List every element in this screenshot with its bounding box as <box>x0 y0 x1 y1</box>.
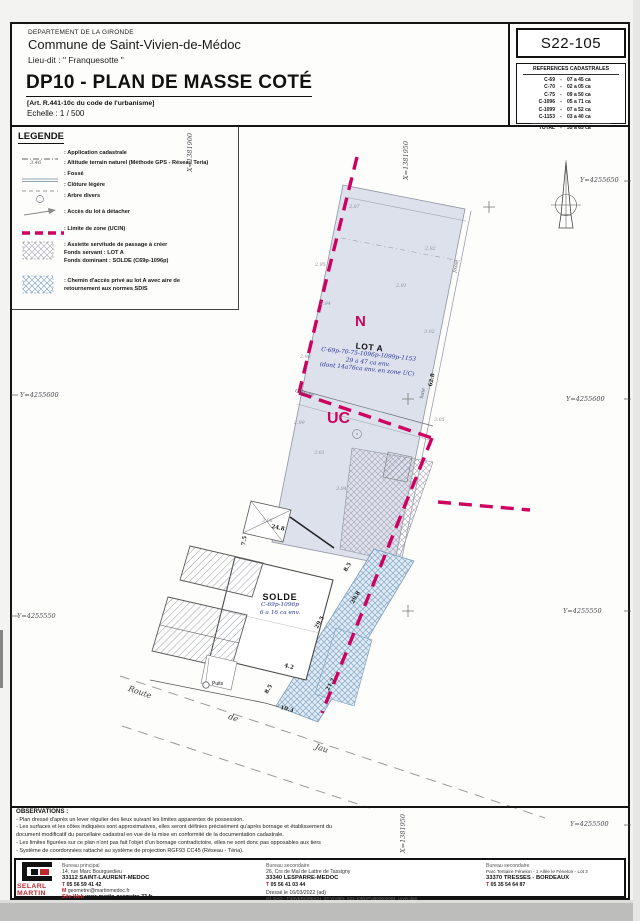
chemin-acces-symbol <box>20 274 60 301</box>
acces-lot-symbol <box>20 206 60 224</box>
email-label: M <box>62 888 66 894</box>
coord-x-label: X=1381900 <box>186 133 194 172</box>
reference-row: C-69-07 a 45 ca <box>517 77 625 85</box>
ref-area: 09 a 50 ca <box>567 92 625 100</box>
logo-text-line2: MARTIN <box>17 890 46 897</box>
scan-edge-band <box>0 903 640 921</box>
legend-item-label: : Assiette servitude de passage à créer <box>64 241 242 249</box>
coord-x-label: X=1381950 <box>402 141 410 180</box>
coord-y-label: Y=4255550 <box>17 612 56 620</box>
scan-artifact <box>0 630 3 688</box>
logo-text-line1: SELARL <box>17 883 47 890</box>
department-label: DEPARTEMENT DE LA GIRONDE <box>28 29 134 36</box>
ref-area: 07 a 52 ca <box>567 107 625 115</box>
dossier-code-box: S22-105 <box>516 28 626 58</box>
legend-title: LEGENDE <box>18 131 64 144</box>
legend-item-label2: Fonds servant : LOT A <box>64 249 242 257</box>
ref-sep: - <box>555 99 567 107</box>
legend-item-label: : Chemin d'accès privé au lot A avec air… <box>64 277 242 285</box>
solde-name: SOLDE <box>240 592 320 602</box>
coord-y-label: Y=4255650 <box>580 176 619 184</box>
legend-item-label: : Application cadastrale <box>64 149 242 157</box>
company-logo-accent <box>40 869 49 875</box>
ref-parcel: C-1099 <box>517 107 555 115</box>
ref-parcel: C-1096 <box>517 99 555 107</box>
observations-block: OBSERVATIONS : - Plan dressé d'après un … <box>16 808 412 855</box>
scan-margin-right <box>633 0 640 921</box>
office-address2: 33112 SAINT-LAURENT-MEDOC <box>62 875 152 882</box>
company-logo-accent2 <box>31 869 38 875</box>
phone-value: 05 56 41 03 44 <box>271 882 306 888</box>
scanned-plan-document: { "header": { "department": "DEPARTEMENT… <box>0 0 640 921</box>
ref-parcel: C-70 <box>517 84 555 92</box>
legend-item-label: : Fossé <box>64 170 242 178</box>
phone-label: T <box>62 882 65 888</box>
altitude-value: 3.01 <box>314 451 325 456</box>
legend-border-bottom <box>12 309 239 310</box>
observation-line: - Plan dressé d'après un lever régulier … <box>16 817 412 825</box>
phone-value: 05 35 54 64 87 <box>491 882 526 888</box>
observation-line: - Système de coordonnées rattaché au sys… <box>16 848 412 856</box>
puits-label: Puits <box>212 681 223 687</box>
phone-label: T <box>486 882 489 888</box>
zone-n-label: N <box>355 313 366 330</box>
legend-item-label3: Fonds dominant : SOLDE (C69p-1096p) <box>64 257 242 265</box>
header-divider-vertical <box>508 24 510 125</box>
phone-label: T <box>266 882 269 888</box>
page-title: DP10 - PLAN DE MASSE COTÉ <box>26 72 312 97</box>
ref-total-area: 35 a 63 ca <box>567 125 611 133</box>
scale-label: Echelle : 1 / 500 <box>27 109 84 118</box>
office-phone: T 05 35 54 64 87 <box>486 882 588 888</box>
ref-area: 05 a 71 ca <box>567 99 625 107</box>
coord-y-label: Y=4255600 <box>20 391 59 399</box>
office-principal: Bureau principal 14, rue Marc Bourguedie… <box>62 863 152 900</box>
ref-sep: - <box>555 125 567 133</box>
references-title: REFERENCES CADASTRALES <box>523 66 619 75</box>
servitude-symbol <box>20 240 60 267</box>
reference-row: C-1096-05 a 71 ca <box>517 99 625 107</box>
observations-title: OBSERVATIONS : <box>16 808 412 815</box>
legend-item-label: : Limite de zone (UC/N) <box>64 225 242 233</box>
observation-line: - Les surfaces et les côtes indiquées so… <box>16 824 412 832</box>
office-address2: 33340 LESPARRE-MEDOC <box>266 875 417 882</box>
office-address1: Parc Tertiaire Fénelon - 1 Allée le Féne… <box>486 869 588 875</box>
zone-uc-label: UC <box>327 410 350 428</box>
ref-sep: - <box>555 77 567 85</box>
altitude-value: 3.04 <box>336 487 347 492</box>
ref-area: 02 a 05 ca <box>567 84 625 92</box>
altitude-value: 3.02 <box>424 330 435 335</box>
ref-parcel: C-1153 <box>517 114 555 122</box>
ref-sep: - <box>555 107 567 115</box>
reference-row: C-75-09 a 50 ca <box>517 92 625 100</box>
ref-area: 03 a 40 ca <box>567 114 625 122</box>
ref-total-label: TOTAL <box>531 125 555 133</box>
observation-line: document modificatif du parcellaire cada… <box>16 832 412 840</box>
ref-parcel: C-69 <box>517 77 555 85</box>
dossier-code: S22-105 <box>541 35 601 52</box>
solde-area: 6 a 16 ca env. <box>240 610 320 618</box>
article-reference: [Art. R.441-10c du code de l'urbanisme] <box>27 100 154 107</box>
legend-item-label: : Clôture légère <box>64 181 242 189</box>
altitude-value: 3.08 <box>262 519 273 524</box>
phone-value: 05 56 59 41 42 <box>67 882 102 888</box>
coord-y-label: Y=4255600 <box>566 395 605 403</box>
office-secondaire-2: Bureau secondaire Parc Tertiaire Fénelon… <box>486 863 588 888</box>
legend-item-label2: retournement aux normes SDIS <box>64 285 242 293</box>
coord-y-label: Y=4255500 <box>570 820 609 828</box>
altitude-value: 2.96 <box>300 355 311 360</box>
ref-sep: - <box>555 114 567 122</box>
solde-refs: C-69p-1096p <box>240 602 320 610</box>
reference-row: C-1153-03 a 40 ca <box>517 114 625 122</box>
references-cadastrales-box: REFERENCES CADASTRALES C-69-07 a 45 ca C… <box>516 63 626 124</box>
ref-sep: - <box>555 92 567 100</box>
commune-title: Commune de Saint-Vivien-de-Médoc <box>28 37 241 52</box>
office-phone: T 05 56 41 03 44 <box>266 882 417 888</box>
reference-row: C-70-02 a 05 ca <box>517 84 625 92</box>
altitude-value: 2.99 <box>294 421 305 426</box>
altitude-value: 2.91 <box>396 284 407 289</box>
altitude-value: 2.87 <box>349 205 360 210</box>
legend-item-label: : Altitude terrain naturel (Méthode GPS … <box>64 159 242 167</box>
altitude-value: 2.94 <box>320 302 331 307</box>
email-value: geometre@martinmedoc.fr <box>68 888 130 894</box>
reference-row: C-1099-07 a 52 ca <box>517 107 625 115</box>
office-address2: 33370 TRESSES - BORDEAUX <box>486 875 588 882</box>
lieu-dit-label: Lieu-dit : " Franquesotte " <box>28 55 124 65</box>
solde-block: SOLDE C-69p-1096p 6 a 16 ca env. <box>240 592 320 617</box>
coord-y-label: Y=4255550 <box>563 607 602 615</box>
reference-total-row: TOTAL-35 a 63 ca <box>531 123 611 133</box>
legend-item-label: : Arbre divers <box>64 192 242 200</box>
legend-item-label: : Accès du lot à détacher <box>64 208 242 216</box>
altitude-value: 2.95 <box>315 263 326 268</box>
ref-sep: - <box>555 84 567 92</box>
altitude-value: 3.05 <box>434 418 445 423</box>
altitude-value: 2.92 <box>425 247 436 252</box>
observation-line: - Les limites figurées sur ce plan n'ont… <box>16 840 412 848</box>
office-secondaire-1: Bureau secondaire 26, Crs de Mal de Latt… <box>266 863 417 901</box>
ref-area: 07 a 45 ca <box>567 77 625 85</box>
ref-parcel: C-75 <box>517 92 555 100</box>
